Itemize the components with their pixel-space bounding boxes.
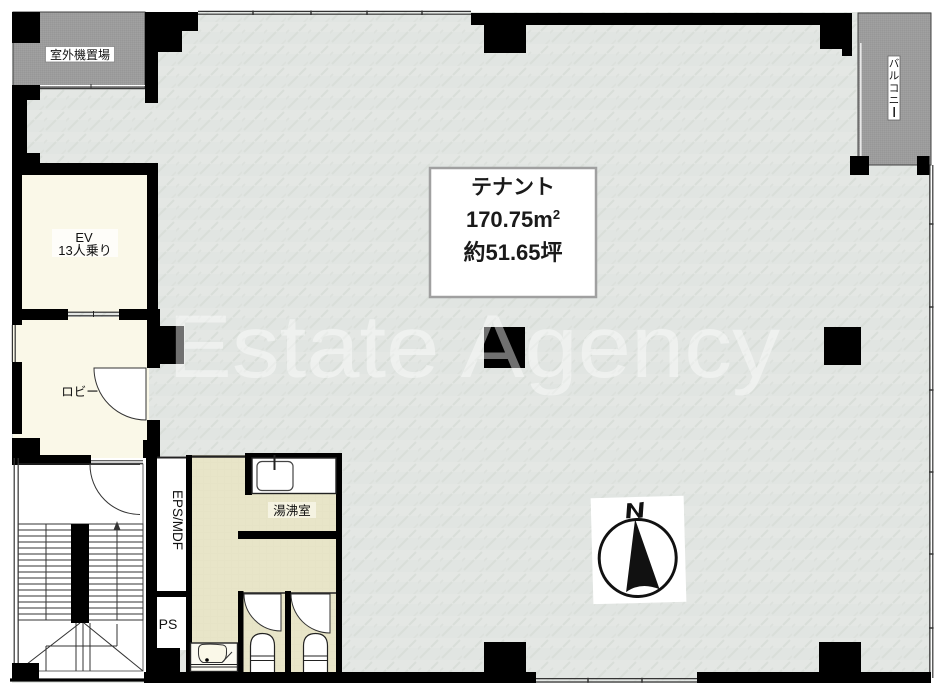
svg-text:170.75m2: 170.75m2 <box>466 207 560 232</box>
svg-text:ロビー: ロビー <box>61 385 99 399</box>
svg-text:Estate Agency: Estate Agency <box>168 296 781 396</box>
svg-text:約51.65坪: 約51.65坪 <box>463 240 562 265</box>
svg-text:PS: PS <box>159 616 178 632</box>
svg-text:EPS/MDF: EPS/MDF <box>170 490 185 550</box>
svg-text:テナント: テナント <box>471 176 555 199</box>
svg-text:湯沸室: 湯沸室 <box>273 503 311 518</box>
svg-text:室外機置場: 室外機置場 <box>50 47 110 62</box>
svg-text:13人乗り: 13人乗り <box>58 243 111 258</box>
svg-text:バルコニ: バルコニ <box>889 58 900 107</box>
